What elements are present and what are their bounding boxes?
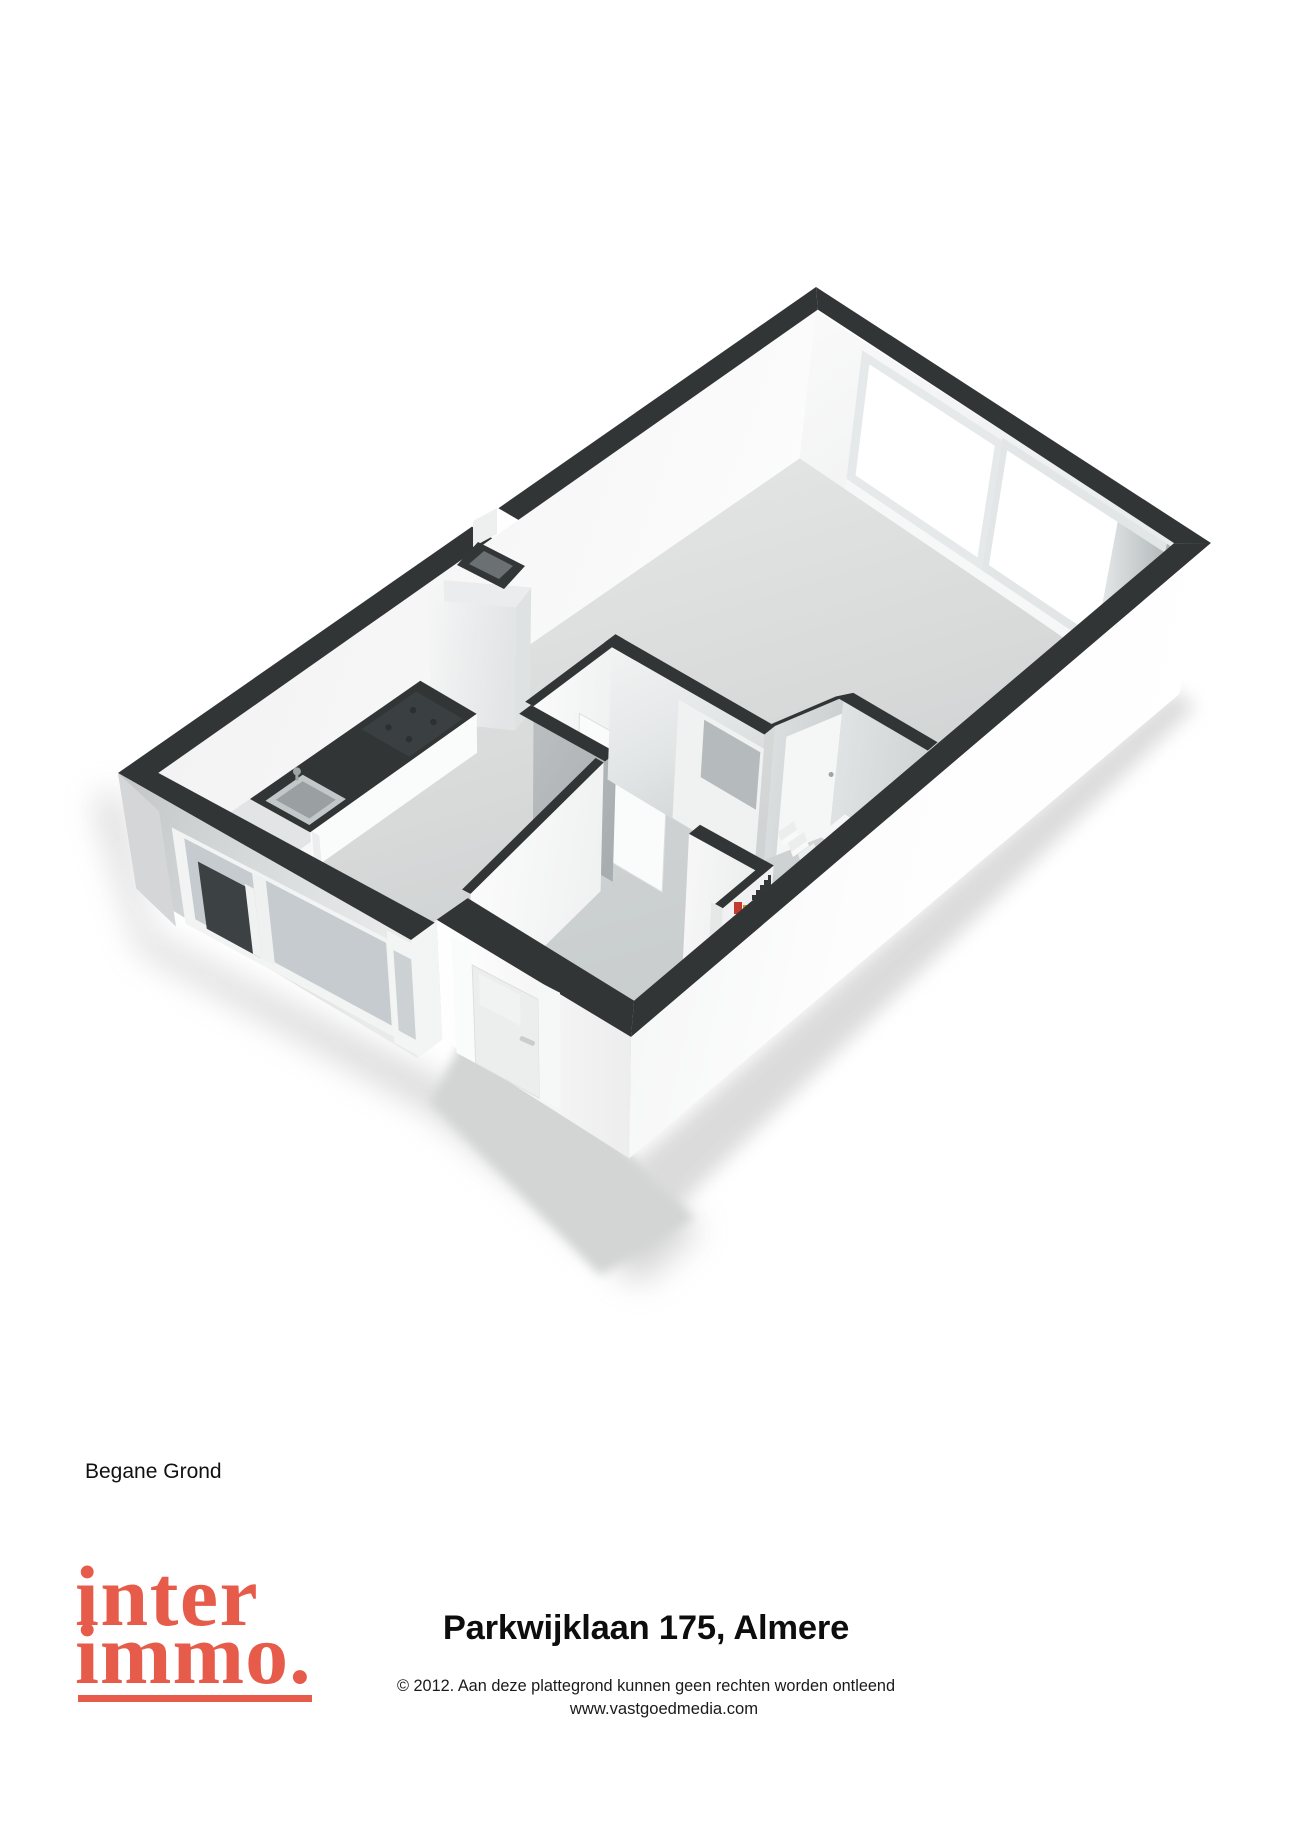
svg-text:Parkwijklaan 175, Almere: Parkwijklaan 175, Almere — [443, 1609, 849, 1647]
svg-text:© 2012. Aan deze plattegrond k: © 2012. Aan deze plattegrond kunnen geen… — [397, 1677, 895, 1695]
svg-text:immo.: immo. — [75, 1606, 312, 1702]
svg-text:Begane Grond: Begane Grond — [85, 1460, 222, 1483]
svg-text:www.vastgoedmedia.com: www.vastgoedmedia.com — [569, 1699, 758, 1718]
